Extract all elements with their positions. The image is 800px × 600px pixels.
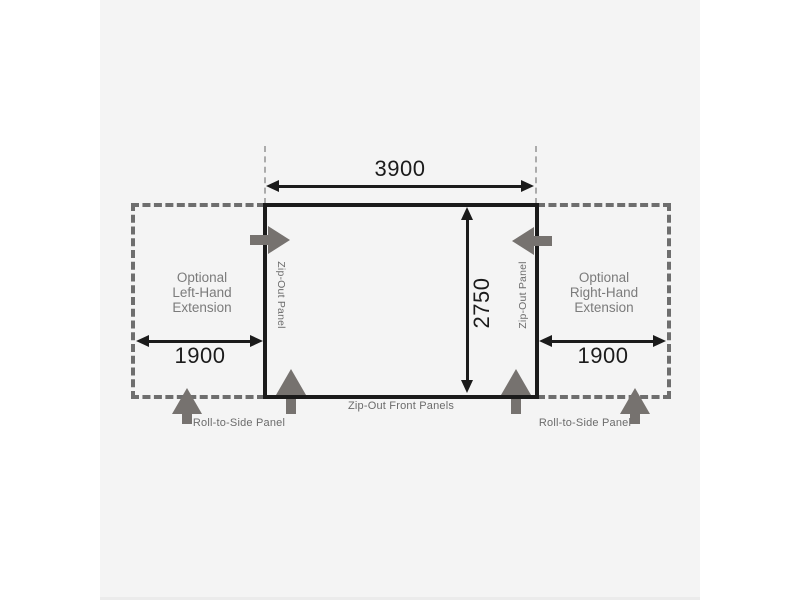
projection-guide-right [535, 146, 537, 204]
right-extension-title-line1: Optional [542, 270, 666, 285]
zip-out-panel-right-label: Zip-Out Panel [516, 249, 530, 341]
depth-dimension-label: 2750 [470, 253, 494, 353]
left-extension-title-line1: Optional [140, 270, 264, 285]
left-extension-title-line2: Left-Hand [140, 285, 264, 300]
left-extension-title-line3: Extension [140, 300, 264, 315]
right-extension-title-line3: Extension [542, 300, 666, 315]
right-extension-title-line2: Right-Hand [542, 285, 666, 300]
projection-guide-left [264, 146, 266, 204]
main-canopy-outline [263, 203, 539, 399]
right-extension-dimension-label: 1900 [553, 344, 653, 368]
left-extension-dimension-label: 1900 [150, 344, 250, 368]
roll-to-side-right-label: Roll-to-Side Panel [515, 417, 655, 430]
zip-out-front-panels-label: Zip-Out Front Panels [331, 400, 471, 413]
width-dimension-arrow [266, 180, 534, 193]
product-dimension-image: { "diagram": { "main_width_mm": "3900", … [0, 0, 800, 600]
left-extension-title: Optional Left-Hand Extension [140, 270, 264, 315]
zip-out-panel-left-label: Zip-Out Panel [274, 249, 288, 341]
width-dimension-label: 3900 [350, 157, 450, 181]
roll-to-side-left-label: Roll-to-Side Panel [169, 417, 309, 430]
right-extension-title: Optional Right-Hand Extension [542, 270, 666, 315]
